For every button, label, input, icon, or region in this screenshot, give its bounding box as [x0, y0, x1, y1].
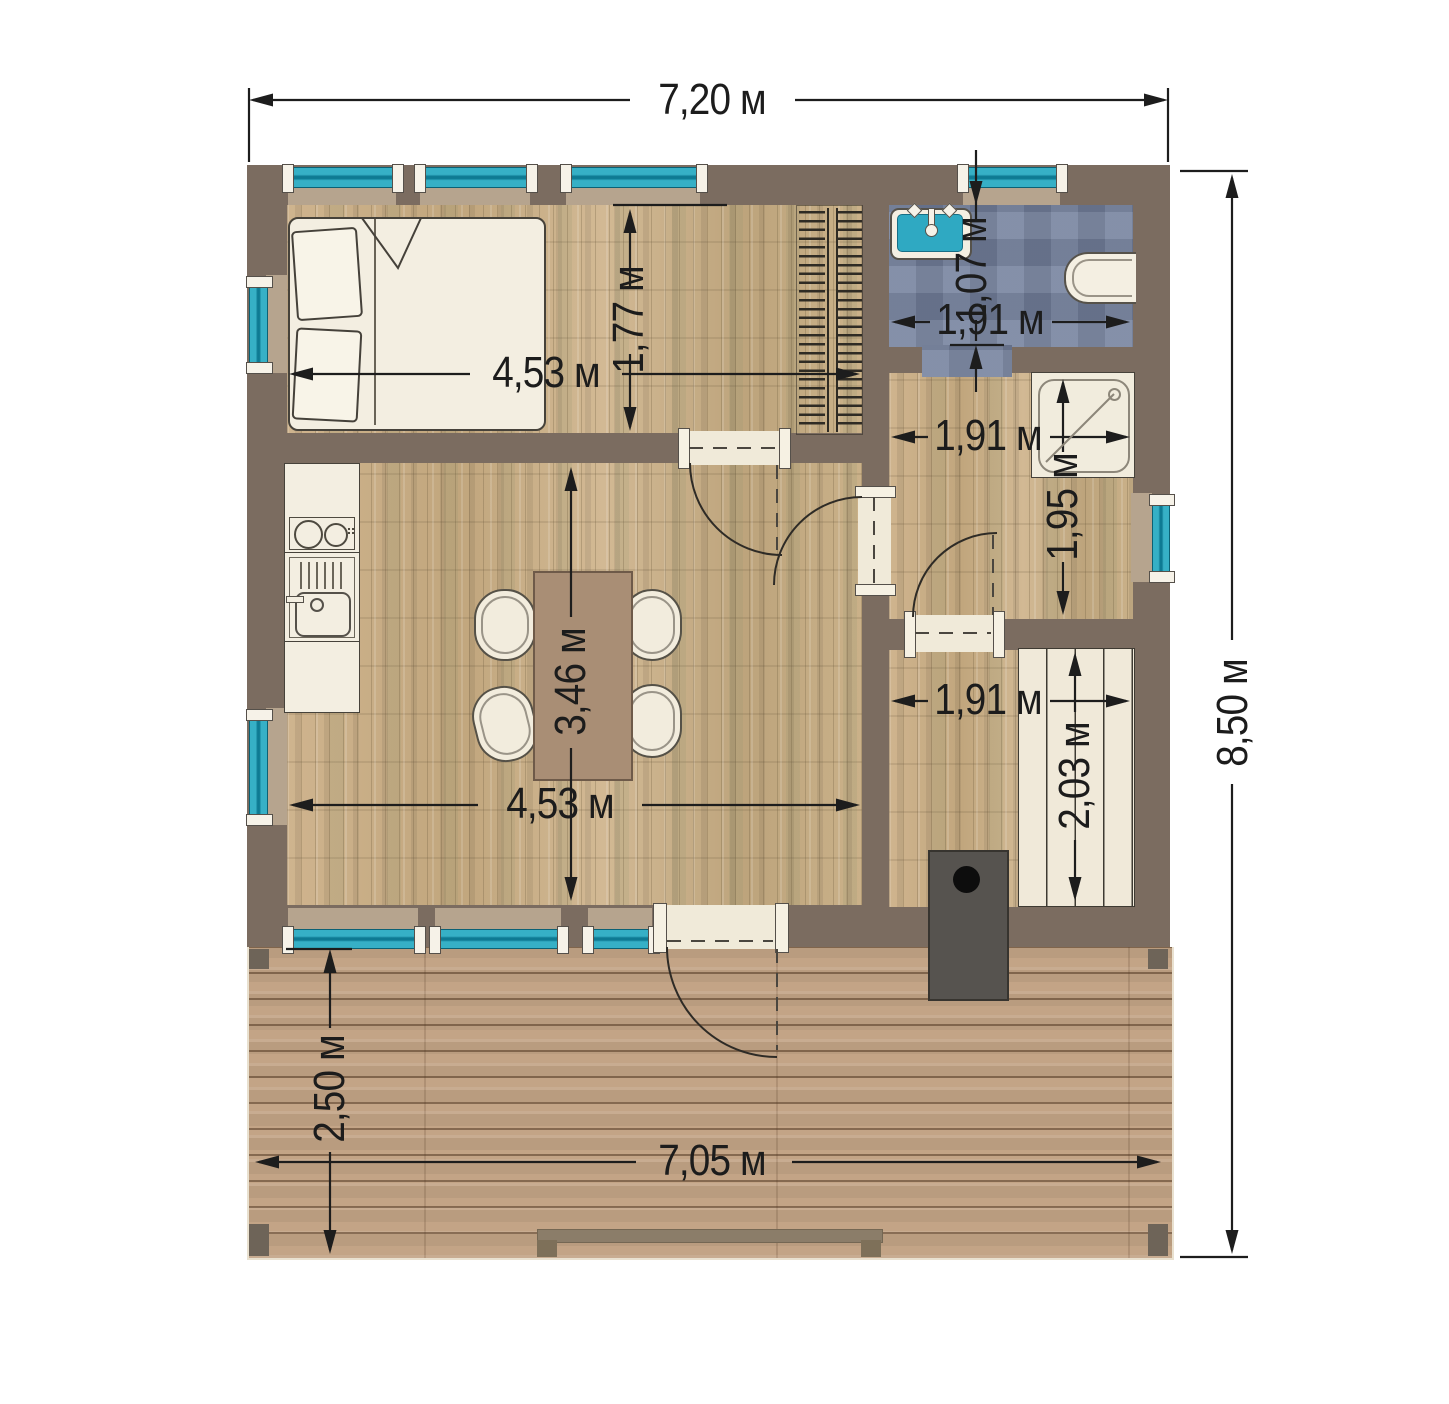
dim-bathroom-width: 1,91 м: [936, 298, 1043, 342]
kitchen-faucet: [286, 596, 304, 603]
sink-drain: [310, 598, 324, 612]
wardrobe-hangers: [799, 211, 825, 429]
window-sill: [288, 186, 396, 205]
dim-hall-width: 1,91 м: [934, 414, 1041, 458]
window-sill: [963, 186, 1060, 205]
wardrobe-hangers: [836, 211, 862, 429]
window-sill: [588, 908, 652, 929]
terrace-post: [249, 1224, 269, 1256]
window-sill: [1131, 493, 1152, 582]
bedroom-window: [420, 167, 532, 188]
window-sill: [288, 908, 418, 929]
window-sill: [266, 708, 287, 825]
toilet-bowl: [1072, 259, 1132, 297]
bathroom-window: [963, 167, 1062, 188]
wardrobe: [797, 206, 862, 434]
terrace-post: [1148, 1224, 1168, 1256]
dim-living-depth: 3,46 м: [549, 628, 593, 735]
bedroom-door-opening: [687, 431, 780, 465]
door-jamb: [993, 611, 1005, 658]
living-window: [588, 929, 654, 949]
door-jamb: [904, 611, 916, 658]
door-jamb: [855, 486, 896, 498]
door-jamb: [855, 584, 896, 596]
bench-seat: [537, 1229, 883, 1243]
window-sill: [420, 186, 530, 205]
hall-window: [1152, 500, 1170, 577]
dim-bedroom-width: 4,53 м: [492, 351, 599, 395]
bedroom-side-window: [249, 282, 268, 368]
terrace-bench: [537, 1229, 881, 1257]
terrace-post: [1148, 949, 1168, 969]
bench-leg: [861, 1240, 881, 1257]
bathroom-faucet-spout: [925, 224, 938, 237]
floor-plan-canvas: 7,20 м 8,50 м 4,53 м 1,77 м 1,07 м 1,91 …: [0, 0, 1449, 1404]
window-sill: [435, 908, 561, 929]
dim-overall-depth: 8,50 м: [1211, 659, 1255, 766]
bedroom-window: [566, 167, 702, 188]
living-window: [435, 929, 563, 949]
dim-hall-depth: 1,95 м: [1041, 453, 1085, 560]
sauna-door-opening: [913, 615, 995, 652]
door-jamb: [775, 903, 789, 953]
door-jamb: [779, 428, 791, 469]
bathroom-doorway-tile: [922, 345, 1012, 377]
cooktop-burner: [294, 520, 323, 549]
shower-drain: [1108, 388, 1121, 401]
dim-sauna-width: 1,91 м: [934, 678, 1041, 722]
bedroom-window: [288, 167, 398, 188]
stove-chimney: [953, 866, 980, 893]
bench-leg: [537, 1240, 557, 1257]
terrace-door-opening: [665, 905, 775, 949]
dim-overall-width: 7,20 м: [658, 78, 765, 122]
hall-door-opening: [858, 495, 891, 585]
kitchen-counter: [284, 641, 360, 713]
sink-drainer: [300, 562, 344, 589]
dim-terrace-width: 7,05 м: [658, 1139, 765, 1183]
pillow: [292, 327, 363, 422]
terrace-post: [249, 949, 269, 969]
cooktop-knobs: [348, 528, 350, 530]
living-window: [288, 929, 420, 949]
door-jamb: [678, 428, 690, 469]
window-sill: [566, 186, 700, 205]
terrace-deck: [247, 947, 1174, 1260]
cooktop-burner: [324, 523, 348, 547]
dim-sauna-bench-depth: 2,03 м: [1053, 722, 1097, 829]
door-jamb: [653, 903, 667, 953]
pillow: [291, 227, 363, 321]
window-sill: [266, 275, 287, 373]
dim-terrace-depth: 2,50 м: [308, 1035, 352, 1142]
dim-bedroom-depth: 1,77 м: [607, 266, 651, 373]
dim-living-width: 4,53 м: [506, 782, 613, 826]
bed-mattress-line: [374, 219, 376, 425]
living-side-window: [249, 715, 268, 820]
